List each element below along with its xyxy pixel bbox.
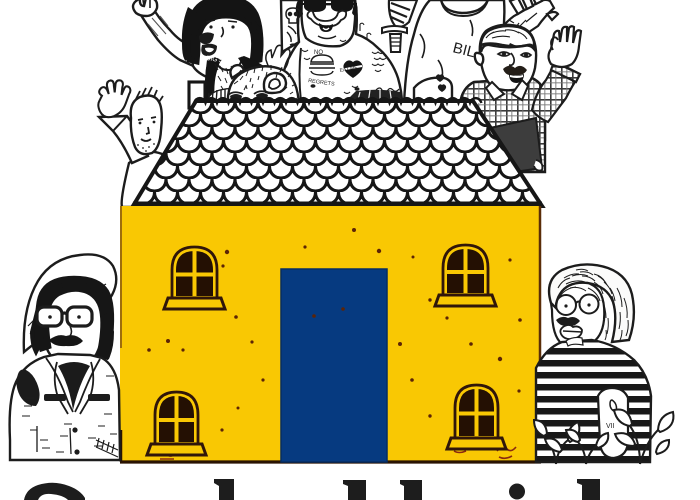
svg-text:NO: NO xyxy=(314,50,323,56)
svg-text:VII: VII xyxy=(606,423,615,430)
